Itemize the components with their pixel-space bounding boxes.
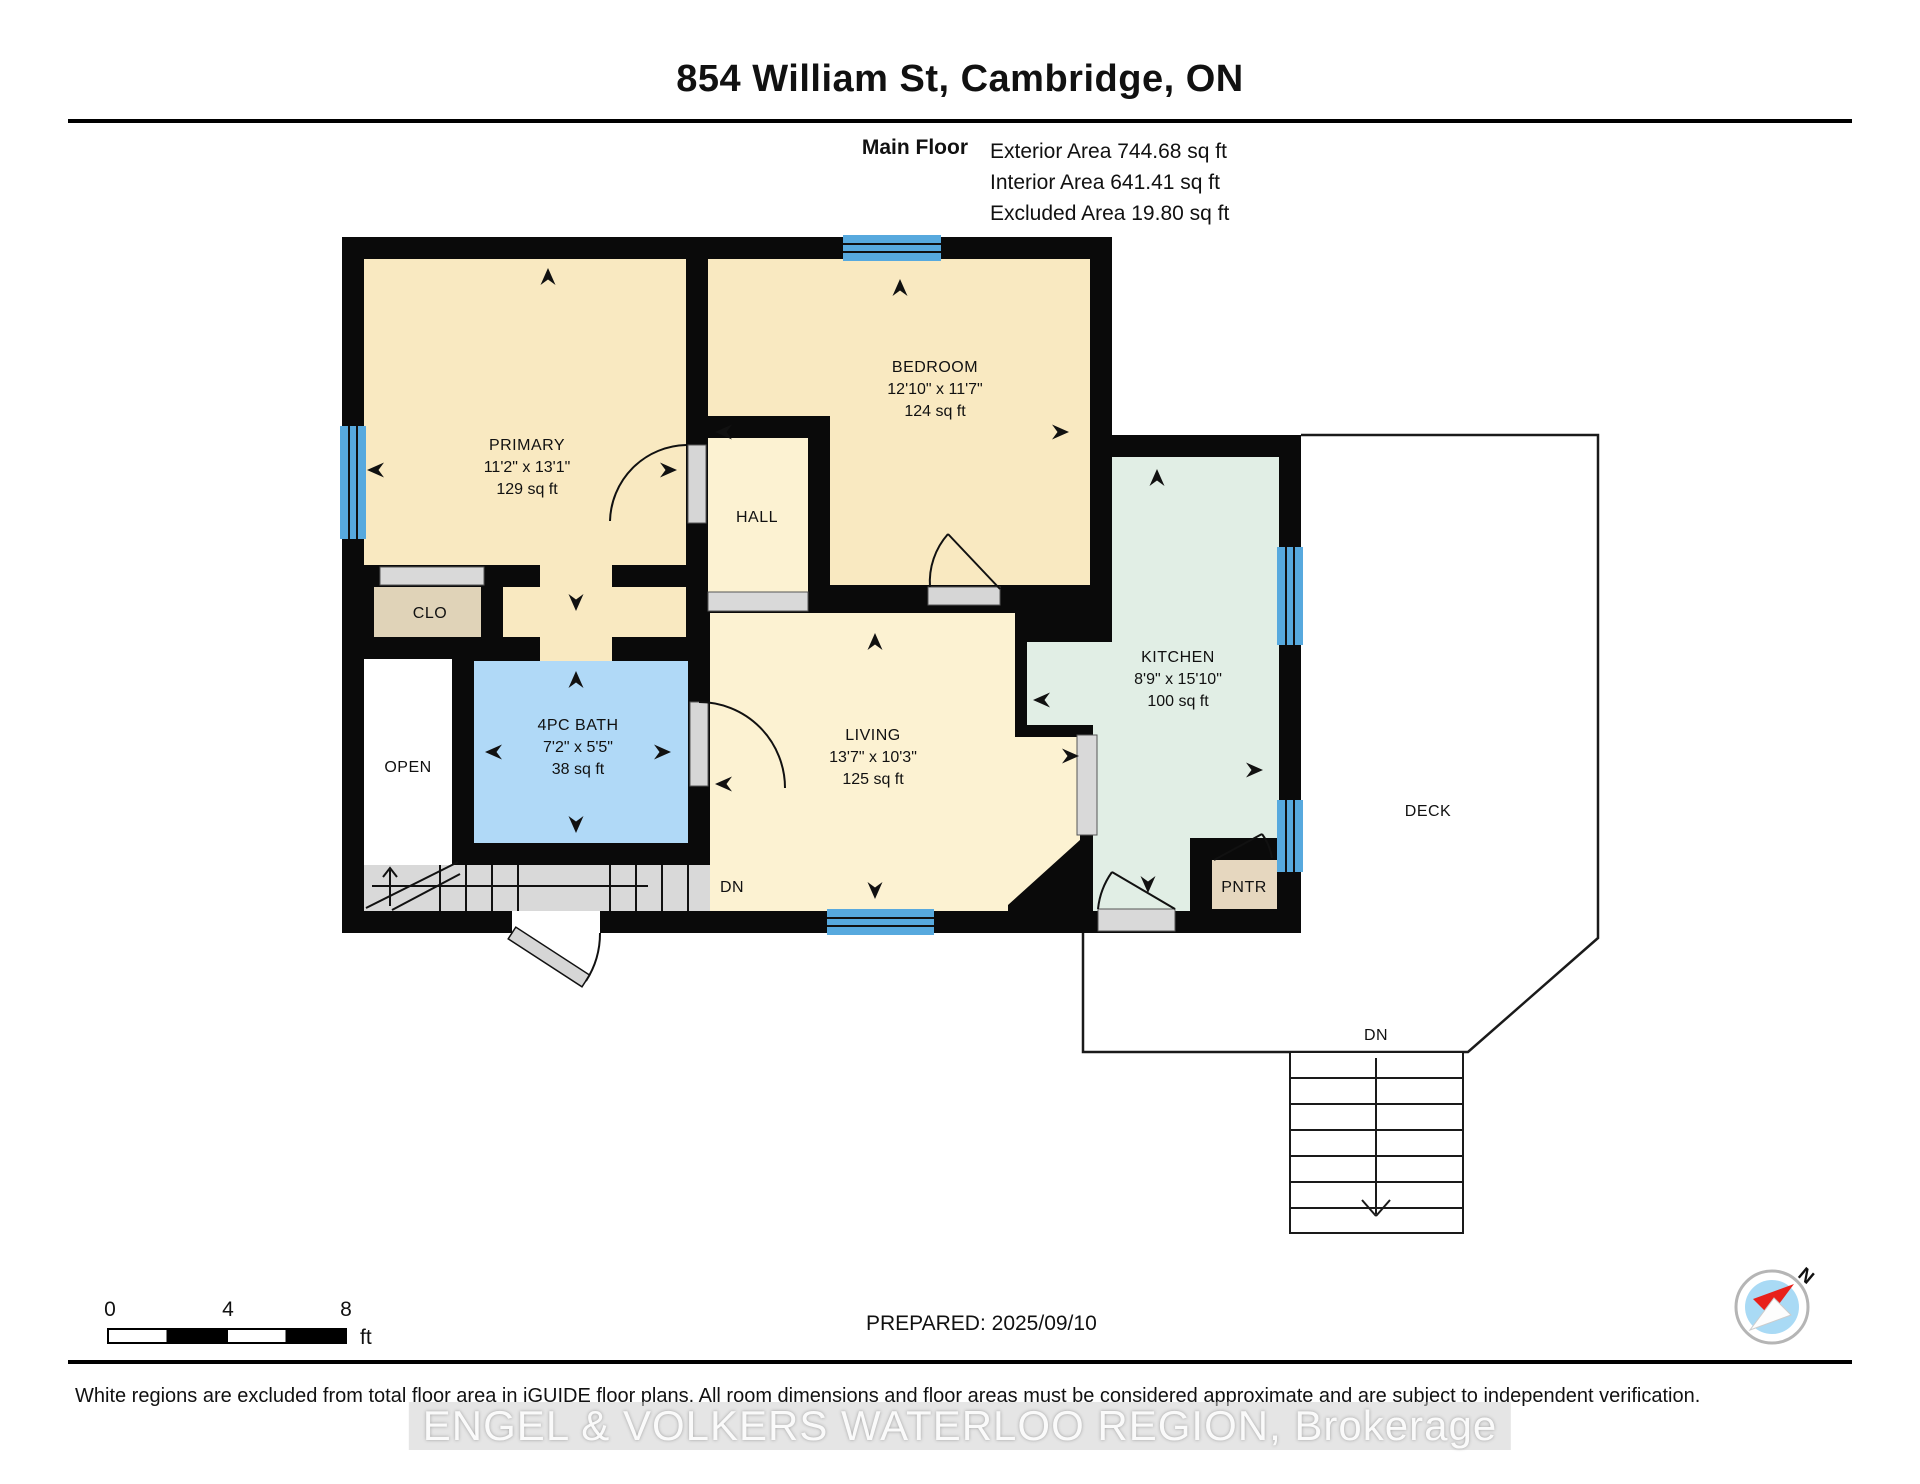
scale-0: 0 [104,1298,116,1321]
footer-divider [68,1360,1852,1364]
deck-stairs-dn-label: DN [1364,1027,1388,1044]
scale-4: 4 [222,1298,234,1321]
floor-label: Main Floor [700,136,968,160]
room-hall-label: HALL [736,509,778,526]
window-living-bottom [827,909,934,935]
primary-opening [540,565,612,587]
svg-text:7'2" x 5'5": 7'2" x 5'5" [543,739,613,756]
header-divider [68,119,1852,123]
svg-text:38 sq ft: 38 sq ft [552,761,605,778]
svg-text:KITCHEN: KITCHEN [1141,649,1215,666]
open-label: OPEN [384,759,431,776]
svg-text:100 sq ft: 100 sq ft [1147,693,1209,710]
primary-closet-front [503,587,686,637]
window-primary-left [340,426,366,539]
kitchen-opening-sill [1077,735,1097,835]
svg-text:LIVING: LIVING [845,727,900,744]
bath-opening [540,637,612,661]
svg-text:12'10" x 11'7": 12'10" x 11'7" [887,381,982,398]
window-kitchen-lower [1277,800,1303,872]
deck-stairs [1290,1052,1463,1233]
svg-text:11'2" x 13'1": 11'2" x 13'1" [484,459,571,476]
svg-text:125 sq ft: 125 sq ft [842,771,904,788]
excluded-area: Excluded Area 19.80 sq ft [990,198,1229,229]
page-title: 854 William St, Cambridge, ON [0,58,1920,101]
scale-unit: ft [360,1326,372,1349]
interior-stairs-dn-label: DN [720,879,744,896]
svg-text:129 sq ft: 129 sq ft [496,481,558,498]
room-primary-label: PRIMARY 11'2" x 13'1" 129 sq ft [484,437,571,498]
hall-opening-sill [708,592,808,611]
window-kitchen-upper [1277,547,1303,645]
scale-8: 8 [340,1298,352,1321]
prepared-date: PREPARED: 2025/09/10 [866,1312,1097,1335]
door-front-entry [508,911,600,987]
svg-text:124 sq ft: 124 sq ft [904,403,966,420]
floorplan-drawing: DECK DN [0,0,1920,1484]
svg-text:PRIMARY: PRIMARY [489,437,565,454]
svg-text:13'7" x 10'3": 13'7" x 10'3" [829,749,917,766]
svg-text:8'9" x 15'10": 8'9" x 15'10" [1134,671,1222,688]
svg-text:BEDROOM: BEDROOM [892,359,978,376]
area-stats: Exterior Area 744.68 sq ft Interior Area… [990,136,1229,229]
room-pantry-label: PNTR [1221,879,1267,896]
compass: N [1736,1264,1818,1343]
scale-bar: 0 4 8 ft [104,1298,372,1349]
room-closet-label: CLO [413,605,447,622]
svg-text:4PC BATH: 4PC BATH [537,717,618,734]
brokerage-watermark: ENGEL & VOLKERS WATERLOO REGION, Brokera… [409,1402,1511,1450]
closet-slider [380,567,484,585]
floorplan-page: DECK DN [0,0,1920,1484]
window-bedroom-top [843,235,941,261]
exterior-area: Exterior Area 744.68 sq ft [990,136,1229,167]
interior-area: Interior Area 641.41 sq ft [990,167,1229,198]
deck-label: DECK [1405,803,1451,820]
interior-stairs-floor [364,865,710,911]
room-primary-floor [364,259,686,565]
